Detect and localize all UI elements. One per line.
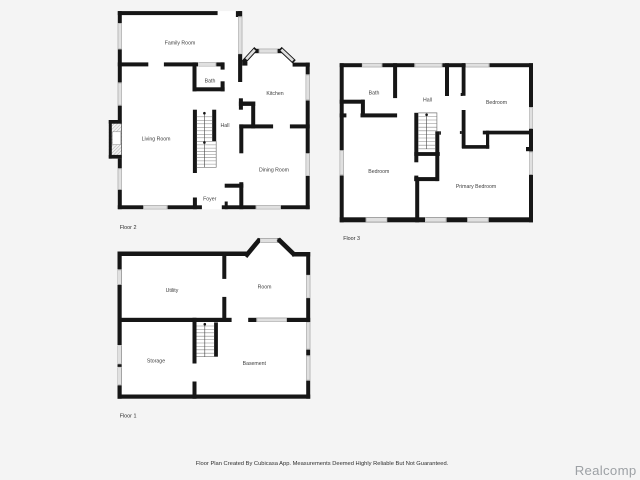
svg-text:Family Room: Family Room	[165, 40, 196, 46]
svg-text:Storage: Storage	[147, 359, 165, 365]
svg-text:Bedroom: Bedroom	[368, 169, 389, 175]
svg-text:Basement: Basement	[243, 361, 267, 367]
svg-text:Bath: Bath	[205, 78, 216, 84]
svg-text:Kitchen: Kitchen	[266, 91, 283, 97]
svg-text:Floor 1: Floor 1	[120, 413, 137, 419]
svg-text:Utility: Utility	[166, 288, 179, 294]
svg-text:Hall: Hall	[423, 97, 432, 103]
svg-text:Room: Room	[258, 284, 272, 290]
svg-text:Living Room: Living Room	[142, 136, 171, 142]
svg-text:Realcomp: Realcomp	[575, 463, 637, 478]
svg-text:Bedroom: Bedroom	[486, 100, 507, 106]
svg-text:Hall: Hall	[221, 123, 230, 129]
svg-text:Floor Plan Created By Cubicasa: Floor Plan Created By Cubicasa App. Meas…	[196, 461, 449, 467]
svg-text:Floor 2: Floor 2	[120, 225, 137, 231]
svg-text:Primary Bedroom: Primary Bedroom	[456, 184, 496, 190]
svg-text:Bath: Bath	[369, 90, 380, 96]
svg-text:Foyer: Foyer	[203, 197, 217, 203]
svg-text:Dining Room: Dining Room	[259, 167, 289, 173]
svg-text:Floor 3: Floor 3	[343, 236, 360, 242]
